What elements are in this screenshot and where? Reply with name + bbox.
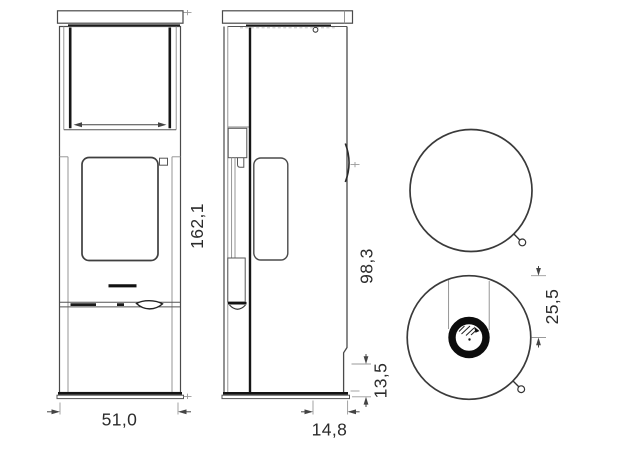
- flue-collar-ring: [452, 321, 486, 355]
- flue-depth-label: 14,8: [312, 420, 348, 440]
- top-view-plain: [410, 130, 532, 252]
- side-rear-edge-with-chamfer: [344, 27, 347, 393]
- front-width-label: 51,0: [102, 410, 138, 430]
- technical-drawing-canvas: 51,0 162,1 98,3: [0, 0, 624, 460]
- flue-offset-arrow-top-icon: [536, 268, 541, 276]
- front-view: [57, 11, 184, 399]
- side-base-plate: [222, 395, 350, 398]
- side-front-strip-box: [228, 128, 247, 157]
- flue-depth-arrow-right-icon: [348, 409, 356, 414]
- top-view-flue: [407, 276, 531, 400]
- dimension-front-height: 162,1: [184, 10, 208, 399]
- side-top-plate: [223, 11, 353, 23]
- side-view: [222, 11, 353, 399]
- front-width-arrow-left-icon: [52, 409, 61, 414]
- flue-center-dot: [468, 338, 470, 340]
- flue-offset-label: 25,5: [542, 289, 562, 325]
- base-height-extension-lines: [352, 364, 372, 397]
- base-height-label: 13,5: [371, 363, 391, 399]
- stove-drawing: 51,0 162,1 98,3: [0, 0, 624, 460]
- front-top-plate: [58, 11, 184, 23]
- front-door-glass: [82, 158, 158, 261]
- base-height-arrow-bottom-icon: [364, 397, 369, 405]
- handle-height-top-tick: [351, 162, 360, 167]
- front-height-top-tick: [184, 10, 192, 15]
- front-door-latch-keeper: [160, 158, 168, 165]
- side-top-bolt-icon: [313, 27, 318, 32]
- side-panel-recess: [254, 158, 288, 260]
- dimension-front-width: 51,0: [47, 403, 191, 430]
- top-plain-handle-stem: [514, 234, 520, 240]
- dimension-flue-depth: 14,8: [301, 401, 360, 440]
- dimension-base-height: 13,5: [352, 354, 391, 407]
- flue-offset-arrow-bottom-icon: [536, 338, 541, 346]
- side-hinge-bracket: [238, 158, 244, 168]
- side-lower-strip-box: [228, 258, 245, 302]
- handle-height-label: 98,3: [357, 248, 377, 284]
- base-height-arrow-top-icon: [364, 356, 369, 364]
- side-latch-lever: [230, 305, 246, 309]
- top-flue-handle-stem: [513, 381, 519, 387]
- front-height-label: 162,1: [187, 203, 207, 249]
- top-plain-handle-knob-icon: [519, 239, 526, 246]
- front-width-arrow-right-icon: [178, 409, 187, 414]
- flue-depth-arrow-left-icon: [305, 409, 314, 414]
- dimension-flue-offset: 25,5: [531, 266, 562, 348]
- front-base-plate: [57, 395, 184, 398]
- top-flue-handle-knob-icon: [518, 386, 525, 393]
- top-plain-body-circle: [410, 130, 532, 252]
- dimension-handle-height: 98,3: [351, 162, 377, 391]
- front-height-bottom-tick: [184, 394, 192, 399]
- flue-depth-extension-lines: [313, 401, 348, 415]
